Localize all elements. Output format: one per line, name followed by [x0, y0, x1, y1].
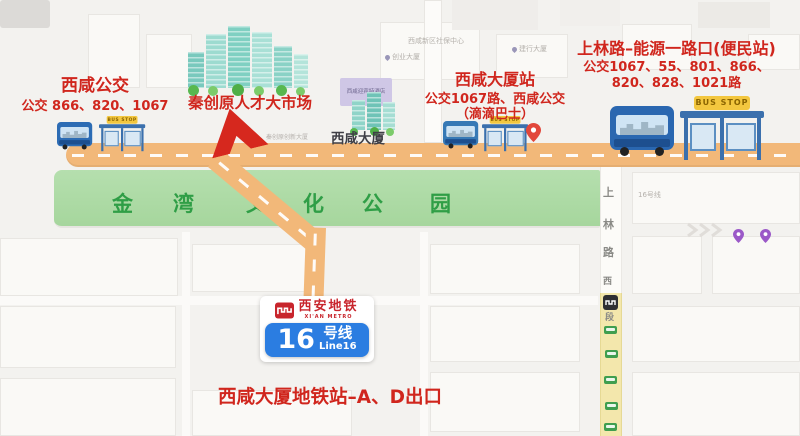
metro-brand-en: XI'AN METRO [305, 314, 353, 320]
road-name-char: 林 [603, 216, 614, 232]
left-stop-lines: 公交 866、820、1067 [10, 99, 180, 115]
road-name-char: 段 [605, 310, 614, 323]
mini-bus-icon [604, 376, 617, 384]
park-name-char: 化 [303, 188, 324, 218]
market-sub-label: 秦创原创新大厦 [266, 132, 308, 141]
poi-label: 创业大厦 [392, 52, 420, 62]
park-name-char: 金 [112, 188, 133, 218]
talent-market-buildings [188, 28, 310, 98]
left-stop-title: 西咸公交 [25, 76, 165, 97]
map-block [632, 372, 800, 436]
bus-stop-sign: BUS STOP [694, 96, 750, 110]
map-pin-icon [511, 45, 518, 52]
poi-social-center-label: 西咸新区社保中心 [408, 36, 464, 46]
road-name-char: 上 [603, 184, 614, 200]
faint-chevrons-icon [686, 222, 734, 238]
metro-brand-cn: 西安地铁 [298, 300, 358, 314]
center-stop-title: 西咸大厦站 [428, 70, 562, 90]
purple-pin-icon [733, 229, 744, 243]
xixian-tower-buildings: 西咸迎宾特酒店 [340, 78, 398, 136]
park-name-char: 园 [430, 188, 451, 218]
metro-line-hint: 16号线 [638, 190, 661, 200]
xian-metro-logo-icon [275, 302, 294, 319]
map-block [712, 236, 800, 294]
bus-shelter-icon: BUS STOP [680, 96, 764, 162]
line16-badge: 16 号线 Line16 [265, 323, 369, 357]
map-block [632, 236, 702, 294]
metro-access-road [303, 227, 326, 304]
right-stop-lines-1: 公交1067、55、801、866、 [568, 60, 785, 76]
map-block [430, 306, 580, 362]
road-name-char: 西 [603, 274, 612, 287]
map-block [560, 0, 620, 26]
map-block [0, 238, 178, 296]
transit-map: 金 湾 文 化 公 园 上 林 路 西 段 16号线 西咸迎宾特酒店 [0, 0, 800, 436]
bus-icon [57, 122, 92, 148]
line-suffix: 号线 [323, 327, 352, 342]
map-block [430, 244, 580, 294]
mini-bus-icon [604, 326, 617, 334]
poi-label: 建行大厦 [519, 44, 547, 54]
bus-icon [610, 106, 674, 154]
map-block [192, 244, 312, 292]
mini-bus-icon [605, 402, 618, 410]
xixian-tower-label: 西咸大厦 [322, 131, 394, 148]
bus-stop-sign: BUS STOP [107, 116, 138, 124]
park-name-char: 湾 [173, 188, 194, 218]
park-area [54, 170, 600, 228]
map-block [632, 306, 800, 362]
bus-shelter-icon: BUS STOP [99, 116, 145, 152]
market-label: 秦创原人才大市场 [172, 94, 328, 113]
right-stop-title: 上林路–能源一路口(便民站) [553, 39, 800, 59]
map-pin-icon [384, 53, 391, 60]
park-name-char: 公 [362, 188, 383, 218]
mini-bus-icon [605, 350, 618, 358]
poi-pin-chuangye: 创业大厦 [385, 52, 420, 62]
center-stop-lines: 公交1067路、西咸公交 [412, 92, 578, 108]
poi-pin-jianhang: 建行大厦 [512, 44, 547, 54]
metro-station-icon [603, 295, 618, 310]
purple-pin-icon [760, 229, 771, 243]
line-name-en: Line16 [319, 342, 357, 353]
map-block [452, 0, 538, 30]
right-stop-lines-2: 820、828、1021路 [568, 76, 785, 92]
center-stop-note: （滴滴巴士） [412, 107, 578, 123]
mini-bus-icon [604, 423, 617, 431]
map-block [0, 0, 50, 28]
map-block [0, 378, 176, 436]
road-name-char: 路 [603, 244, 614, 260]
map-block [0, 306, 176, 368]
map-block [698, 2, 770, 28]
line-number: 16 [277, 326, 315, 353]
location-pin-icon [526, 123, 541, 142]
metro-exit-note: 西咸大厦地铁站–A、D出口 [170, 386, 490, 409]
metro-brand-card: 西安地铁 XI'AN METRO 16 号线 Line16 [260, 296, 374, 362]
bus-icon [443, 121, 478, 147]
metro-logo-row: 西安地铁 XI'AN METRO [265, 300, 369, 320]
